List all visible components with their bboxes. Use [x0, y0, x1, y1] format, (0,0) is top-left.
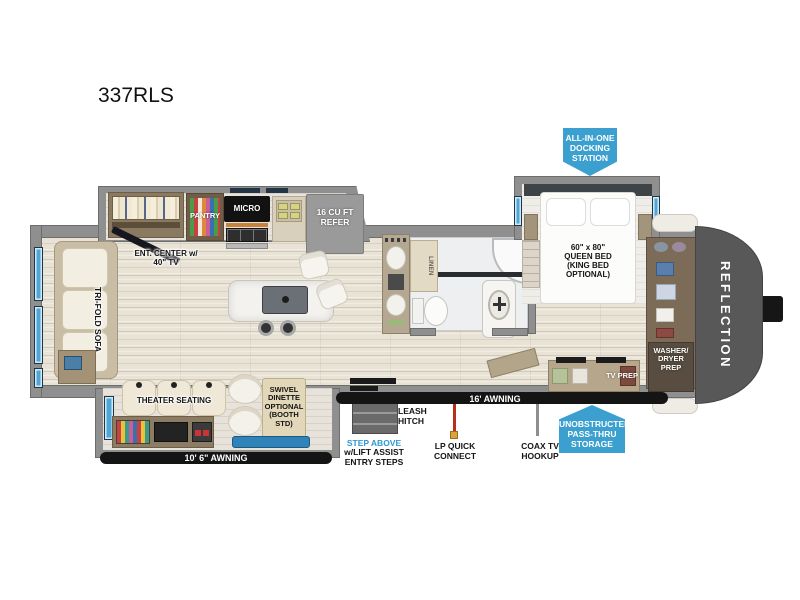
- awning-left-label: 10' 6" AWNING: [184, 453, 247, 463]
- kitchen-window-slit: [266, 188, 288, 193]
- bar-stool: [258, 320, 274, 336]
- console-tray: [116, 420, 150, 444]
- bookshelf: [112, 196, 180, 220]
- toilet-tank: [412, 298, 424, 324]
- bath-counter-edge: [438, 272, 528, 277]
- sink-basin: [278, 203, 288, 210]
- refer-label: 16 CU FT REFER: [304, 208, 366, 227]
- awning-right-label: 16' AWNING: [430, 394, 560, 404]
- awning-bar-left: 10' 6" AWNING: [100, 452, 332, 464]
- lp-connect-fitting: [450, 431, 458, 439]
- bed-steps: [522, 240, 540, 288]
- passthru-storage-callout: UNOBSTRUCTED PASS-THRU STORAGE: [559, 405, 625, 453]
- microwave: MICRO: [224, 196, 270, 222]
- floorplan-canvas: 337RLS ENT. CENTER w/ 40" TV PANTRY MICR…: [0, 0, 800, 600]
- bath-wall-door-right: [492, 328, 528, 336]
- cap-edge-top: [652, 214, 698, 232]
- mid-cabinet-basin: [386, 294, 406, 316]
- seat-speaker: [206, 382, 212, 388]
- nightstand: [524, 214, 538, 240]
- dresser-item: [572, 368, 588, 384]
- swivel-chair: [228, 406, 262, 436]
- wardrobe-item: [656, 308, 674, 322]
- step-above-sub-label: w/LIFT ASSIST ENTRY STEPS: [342, 448, 406, 467]
- dresser-item: [552, 368, 568, 384]
- rear-window: [34, 306, 43, 364]
- ent-center-label: ENT. CENTER w/ 40" TV: [118, 250, 214, 268]
- washer-dryer-label: WASHER/ DRYER PREP: [648, 347, 694, 372]
- wardrobe-item: [656, 284, 676, 300]
- tv-prep-label: TV PREP: [594, 372, 650, 380]
- wardrobe-item: [672, 242, 686, 252]
- dinette-label: SWIVEL DINETTE OPTIONAL (BOOTH STD): [261, 386, 307, 428]
- console-button: [195, 430, 201, 436]
- pantry-label: PANTRY: [182, 212, 228, 220]
- pillow: [590, 198, 630, 226]
- console-button: [203, 430, 209, 436]
- bedroom-window-left: [514, 196, 522, 226]
- rear-corner-window: [34, 368, 43, 388]
- entry-step-inner: [350, 386, 378, 391]
- wardrobe-item: [656, 262, 674, 276]
- island-faucet: [282, 296, 289, 303]
- pillow: [546, 198, 586, 226]
- seat-speaker: [136, 382, 142, 388]
- dresser-tv-bar: [556, 357, 586, 363]
- dresser-tv-bar: [596, 357, 626, 363]
- ent-center-shelf: [112, 222, 180, 228]
- sink-basin: [278, 212, 288, 219]
- mid-cabinet-knobs: [385, 238, 407, 242]
- mid-cabinet-tray: [388, 320, 404, 325]
- mid-cabinet-basin: [386, 246, 406, 270]
- lp-connect-line: [453, 404, 456, 434]
- wardrobe-item: [654, 242, 668, 252]
- lp-connect-label: LP QUICK CONNECT: [427, 442, 483, 461]
- corner-cabinet-screen: [64, 356, 82, 370]
- sink-basin: [290, 212, 300, 219]
- wardrobe-item: [656, 328, 674, 338]
- micro-label: MICRO: [234, 205, 261, 214]
- leash-hitch-label: LEASH HITCH: [398, 407, 442, 426]
- bath-wall-door-left: [410, 328, 436, 336]
- range-knob-strip: [226, 243, 268, 249]
- theater-label: THEATER SEATING: [128, 397, 220, 406]
- toilet: [424, 296, 448, 326]
- entry-step-inner: [350, 378, 396, 384]
- console-tray: [154, 422, 188, 442]
- coax-line: [536, 404, 539, 436]
- range-trim: [226, 223, 268, 227]
- bar-stool: [280, 320, 296, 336]
- floor-mat: [232, 436, 310, 448]
- range-cooktop: [226, 228, 268, 242]
- swivel-chair: [228, 374, 262, 404]
- docking-station-callout: ALL-IN-ONE DOCKING STATION: [563, 128, 617, 176]
- bed-label: 60" x 80" QUEEN BED (KING BED OPTIONAL): [542, 244, 634, 280]
- linen-label: LINEN: [414, 246, 434, 286]
- kitchen-window-slit: [230, 188, 260, 193]
- mid-cabinet-panel: [388, 274, 404, 290]
- entry-steps: [352, 400, 398, 434]
- rear-window: [34, 247, 43, 301]
- brand-label: REFLECTION: [706, 240, 732, 390]
- vanity-faucet: [498, 297, 501, 311]
- page-title: 337RLS: [98, 84, 174, 108]
- seat-speaker: [171, 382, 177, 388]
- sink-basin: [290, 203, 300, 210]
